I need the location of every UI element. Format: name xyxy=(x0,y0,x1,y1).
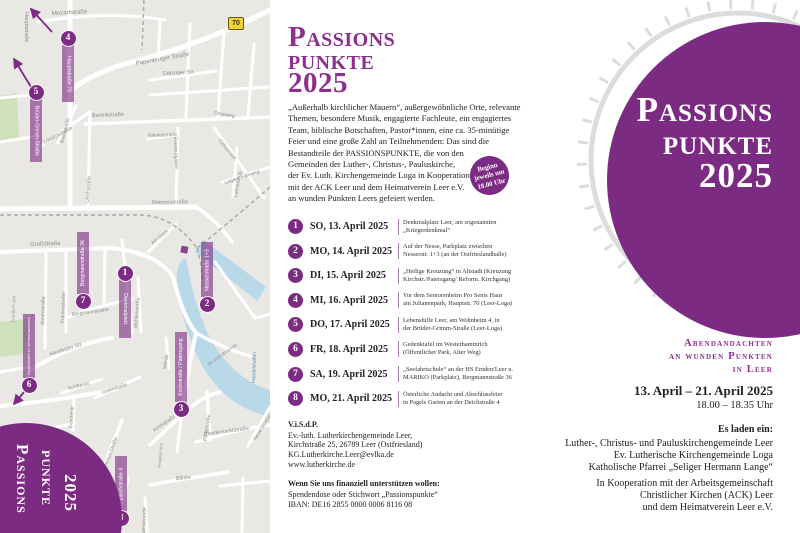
text-line: „Kriegerdenkmal“ xyxy=(403,227,496,235)
event-number-badge: 2 xyxy=(288,244,303,259)
marker-banner-6: Gedenktafel im Westerhammrich xyxy=(23,314,35,378)
event-row: 7SA, 19. April 2025„Seefahrtschule“ an d… xyxy=(288,366,513,383)
street-label: Annenstraße xyxy=(40,296,47,325)
text-line: Vor dem Seniorenheim Pro Senis Haus xyxy=(403,292,512,300)
text-line: und dem Heimatverein Leer e.V. xyxy=(596,502,773,514)
marker-banner-4: Hauptstraße 70 xyxy=(62,45,74,102)
event-location: „Seefahrtschule“ an der HS Emden/Leer u.… xyxy=(398,366,513,382)
event-number-badge: 4 xyxy=(288,293,303,308)
donation-heading: Wenn Sie uns finanziell unterstützen wol… xyxy=(288,479,440,489)
event-date: DO, 17. April 2025 xyxy=(310,319,398,330)
marker-banner-7: Bergmannstraße 36 xyxy=(77,232,89,294)
text-line: an wunden Punkten xyxy=(669,350,773,363)
text-line: Ev.-luth. Lutherkirchengemeinde Leer, xyxy=(288,431,422,441)
event-date: DI, 15. April 2025 xyxy=(310,270,398,281)
back-title-line3: 2025 xyxy=(60,474,80,512)
event-location: Denkmalplatz Leer, am sogenannten„Kriege… xyxy=(398,219,496,235)
street-label: Großstraße xyxy=(30,241,61,248)
event-row: 4MI, 16. April 2025Vor dem Seniorenheim … xyxy=(288,292,513,309)
text-line: 2025 xyxy=(288,72,395,95)
event-number-badge: 3 xyxy=(288,268,303,283)
imprint-block: V.i.S.d.P. Ev.-luth. Lutherkirchengemein… xyxy=(288,420,422,470)
street-label: Evenburgallee xyxy=(172,137,179,169)
banner-label: Gedenktafel im Westerhammrich xyxy=(23,314,35,378)
event-row: 6FR, 18. April 2025Gedenktafel im Wester… xyxy=(288,341,513,358)
text-line: Feier und eine große Zahl an Teilnehmend… xyxy=(288,136,530,147)
brochure-page: 70 MozartstraßeHauptstraßePapenburger St… xyxy=(0,0,800,533)
event-location: Gedenktafel im Westerhammrich(Öffentlich… xyxy=(398,341,488,357)
banner-label: Kirchstraße / Patersgang xyxy=(175,332,187,402)
text-line: „Außerhalb kirchlicher Mauern“, außergew… xyxy=(288,102,530,113)
street-label: Reimersstraße xyxy=(152,199,188,206)
event-row: 5DO, 17. April 2025Lebenshilfe Leer, am … xyxy=(288,316,513,333)
cover-title: Passionspunkte2025 xyxy=(637,93,773,192)
program-panel: Passionspunkte2025 „Außerhalb kirchliche… xyxy=(270,0,533,533)
text-line: „Heilige Kreuzung“ in Altstadt (Kreuzung xyxy=(403,268,511,276)
cover-subtitle: Abendandachtenan wunden Punktenin Leer xyxy=(669,337,773,376)
map-marker-5: 5 xyxy=(29,85,44,100)
text-line: der Brüder-Grimm-Straße (Leer-Loga) xyxy=(403,325,502,333)
marker-banner-3: Kirchstraße / Patersgang xyxy=(175,332,187,402)
street-label: Bavinkstraße xyxy=(92,112,124,119)
text-line: in Pagels Garten an der Deichstraße 4 xyxy=(403,399,503,407)
street-label: Handelshafen xyxy=(251,352,258,383)
text-line: Abendandachten xyxy=(669,337,773,350)
text-line: Luther-, Christus- und Pauluskirchengeme… xyxy=(565,438,773,450)
text-line: Passions xyxy=(637,93,773,126)
back-title-line1: Passions xyxy=(12,444,32,514)
date-range: 13. April – 21. April 2025 xyxy=(634,383,773,399)
imprint-lines: Ev.-luth. Lutherkirchengemeinde Leer,Kir… xyxy=(288,431,422,470)
text-line: Spendendose oder Stichwort „Passionspunk… xyxy=(288,490,440,500)
text-line: am Julianenpark, Hauptstr. 70 (Leer-Loga… xyxy=(403,300,512,308)
street-label: Friedhof Leer xyxy=(11,296,17,323)
time-range: 18.00 – 18.35 Uhr xyxy=(634,400,773,411)
text-line: Denkmalplatz Leer, am sogenannten xyxy=(403,219,496,227)
marker-banner-1: Denkmalplatz xyxy=(119,280,131,338)
text-line: Themen, besondere Musik, engagierte Fach… xyxy=(288,113,530,124)
text-line: 2025 xyxy=(637,159,773,192)
text-line: in Leer xyxy=(669,363,773,376)
map-marker-2: 2 xyxy=(200,297,215,312)
banner-label: Hauptstraße 70 xyxy=(62,45,74,102)
event-row: 3DI, 15. April 2025„Heilige Kreuzung“ in… xyxy=(288,267,513,284)
text-line: Katholische Pfarrei „Seliger Hermann Lan… xyxy=(565,462,773,474)
banner-label: Bergmannstraße 36 xyxy=(77,232,89,294)
city-map: 70 MozartstraßeHauptstraßePapenburger St… xyxy=(0,0,270,533)
event-number-badge: 5 xyxy=(288,317,303,332)
event-date: FR, 18. April 2025 xyxy=(310,344,398,355)
cooperation-block: In Kooperation mit der Arbeitsgemeinscha… xyxy=(596,478,773,514)
event-location: „Heilige Kreuzung“ in Altstadt (Kreuzung… xyxy=(398,268,511,284)
event-date: SO, 13. April 2025 xyxy=(310,221,398,232)
text-line: Kirchstraße 25, 26789 Leer (Ostfriesland… xyxy=(288,440,422,450)
cover-dates: 13. April – 21. April 2025 18.00 – 18.35… xyxy=(634,383,773,411)
event-row: 8MO, 21. April 2025Österliche Andacht un… xyxy=(288,390,513,407)
text-line: Gedenktafel im Westerhammrich xyxy=(403,341,488,349)
map-marker-7: 7 xyxy=(76,294,91,309)
banner-label: Brüder-Grimm-Straße xyxy=(30,99,42,162)
marker-banner-2: Nesserstraße 1+3 xyxy=(201,242,213,297)
event-location: Lebenshilfe Leer, am Wohnheim 4, inder B… xyxy=(398,317,502,333)
cover-panel: Passionspunkte2025 Abendandachtenan wund… xyxy=(533,0,800,533)
back-title-line2: punkte xyxy=(37,450,57,506)
event-row: 2MO, 14. April 2025Auf der Nesse, Parkpl… xyxy=(288,243,513,260)
event-number-badge: 1 xyxy=(288,219,303,234)
street-label: Westerende xyxy=(141,507,148,533)
invite-lines: Luther-, Christus- und Pauluskirchengeme… xyxy=(565,438,773,474)
text-line: MARIKO (Parkplatz), Bergmannstraße 36 xyxy=(403,374,513,382)
inviting-parishes-block: Es laden ein: Luther-, Christus- und Pau… xyxy=(565,424,773,474)
road-number-badge: 70 xyxy=(228,17,244,30)
donation-lines: Spendendose oder Stichwort „Passionspunk… xyxy=(288,490,440,510)
text-line: Ev. Lutherische Kirchengemeinde Loga xyxy=(565,450,773,462)
event-location: Auf der Nesse, Parkplatz zwischenNessers… xyxy=(398,243,507,259)
text-line: In Kooperation mit der Arbeitsgemeinscha… xyxy=(596,478,773,490)
text-line: Lebenshilfe Leer, am Wohnheim 4, in xyxy=(403,317,502,325)
invite-heading: Es laden ein: xyxy=(565,424,773,436)
event-row: 1SO, 13. April 2025Denkmalplatz Leer, am… xyxy=(288,218,513,235)
map-marker-3: 3 xyxy=(174,402,189,417)
text-line: Nesserstr. 1+3 (an der Ostfrieslandhalle… xyxy=(403,251,507,259)
text-line: Christlicher Kirchen (ACK) Leer xyxy=(596,490,773,502)
highlighted-building xyxy=(180,245,188,253)
text-line: Team, biblische Botschaften, Pastor*inne… xyxy=(288,125,530,136)
banner-label: Denkmalplatz xyxy=(119,280,131,338)
text-line: Österliche Andacht und Abschlussfeier xyxy=(403,391,503,399)
text-line: „Seefahrtschule“ an der HS Emden/Leer u. xyxy=(403,366,513,374)
event-date: MI, 16. April 2025 xyxy=(310,295,398,306)
event-date: SA, 19. April 2025 xyxy=(310,369,398,380)
map-marker-4: 4 xyxy=(61,31,76,46)
marker-banner-5: Brüder-Grimm-Straße xyxy=(30,99,42,162)
page-title: Passionspunkte2025 xyxy=(288,26,395,95)
street-label: Friesenstraße xyxy=(60,292,67,323)
event-list: 1SO, 13. April 2025Denkmalplatz Leer, am… xyxy=(288,218,513,415)
text-line: punkte xyxy=(637,126,773,159)
event-number-badge: 6 xyxy=(288,342,303,357)
street-label: Hauptstraße xyxy=(23,12,29,42)
text-line: an wunden Punkten Leers gefeiert werden. xyxy=(288,193,530,204)
map-marker-6: 6 xyxy=(22,378,37,393)
event-date: MO, 14. April 2025 xyxy=(310,246,398,257)
event-date: MO, 21. April 2025 xyxy=(310,393,398,404)
event-location: Vor dem Seniorenheim Pro Senis Hausam Ju… xyxy=(398,292,512,308)
text-line: Auf der Nesse, Parkplatz zwischen xyxy=(403,243,507,251)
map-marker-1: 1 xyxy=(118,266,133,281)
text-line: www.lutherkirche.de xyxy=(288,460,422,470)
text-line: (Öffentlicher Park, Alter Weg) xyxy=(403,349,488,357)
banner-label: Nesserstraße 1+3 xyxy=(201,242,213,297)
text-line: IBAN: DE16 2855 0000 0006 8116 08 xyxy=(288,500,440,510)
imprint-heading: V.i.S.d.P. xyxy=(288,420,422,430)
event-number-badge: 8 xyxy=(288,391,303,406)
text-line: Kirchstr./Patersgang/ Reform. Kirchgang) xyxy=(403,276,511,284)
event-number-badge: 7 xyxy=(288,367,303,382)
event-location: Österliche Andacht und Abschlussfeierin … xyxy=(398,391,503,407)
donation-block: Wenn Sie uns finanziell unterstützen wol… xyxy=(288,479,440,509)
text-line: KG.Lutherkirche.Leer@evlka.de xyxy=(288,450,422,460)
